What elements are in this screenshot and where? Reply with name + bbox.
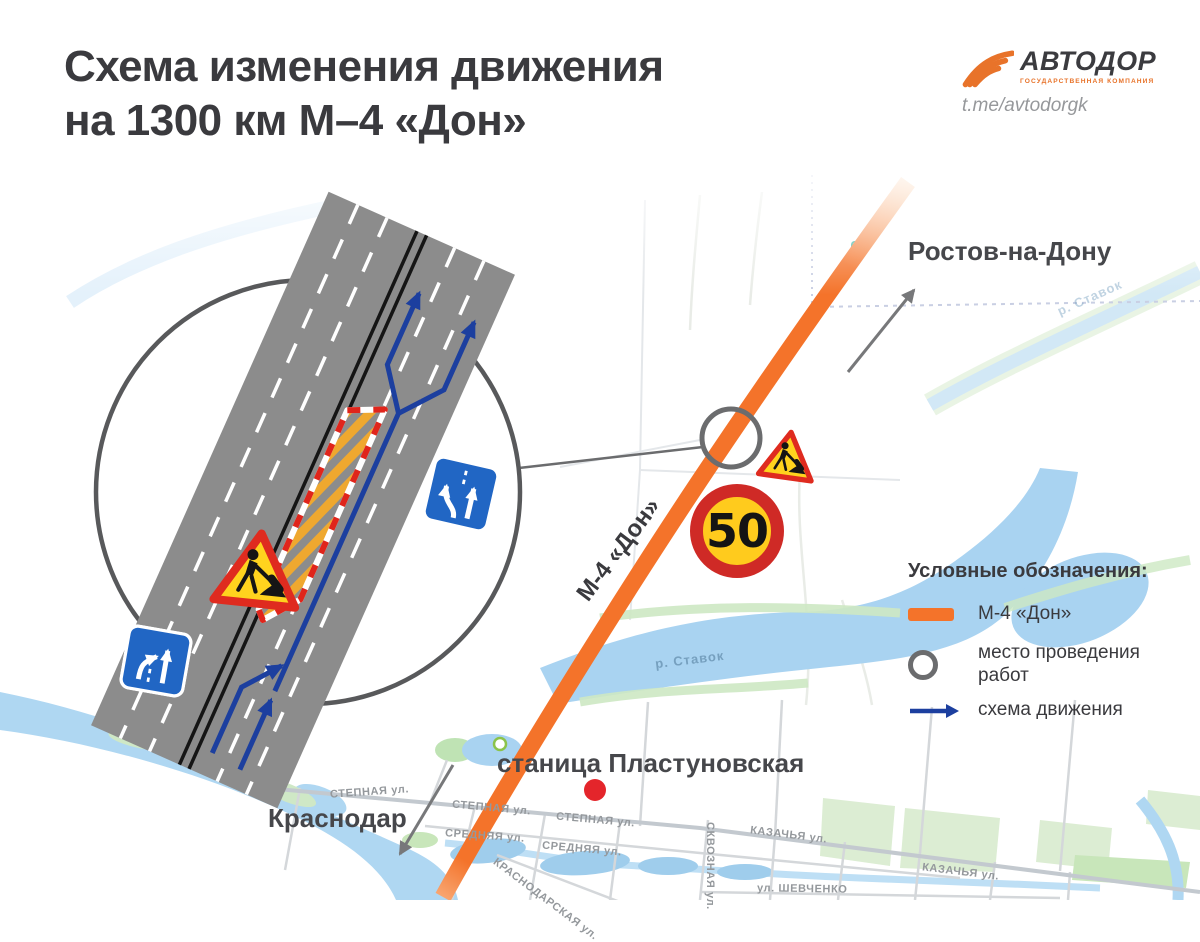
avtodor-logo: АВТОДОР ГОСУДАРСТВЕННАЯ КОМПАНИЯ t.me/av… — [962, 48, 1162, 117]
label-krasnodar: Краснодар — [268, 803, 407, 834]
legend-item-highway: М-4 «Дон» — [908, 603, 1176, 626]
legend-item-traffic-scheme: схема движения — [908, 699, 1176, 722]
rostov-direction-arrow — [848, 290, 914, 372]
page-title: Схема изменения движения на 1300 км М–4 … — [64, 40, 664, 147]
street-label: ул. ШЕВЧЕНКО — [757, 882, 848, 896]
label-stanitsa: станица Пластуновская — [497, 748, 804, 779]
legend-title: Условные обозначения: — [908, 560, 1176, 583]
direction-arrow-icon — [908, 703, 960, 719]
infographic-canvas: { "header": { "title_line1": "Схема изме… — [0, 0, 1200, 900]
speed-limit-value: 50 — [706, 504, 768, 558]
logo-brand: АВТОДОР — [1020, 48, 1156, 75]
label-rostov: Ростов-на-Дону — [908, 236, 1111, 267]
legend-item-label: М-4 «Дон» — [978, 603, 1071, 626]
page-title-line2: на 1300 км М–4 «Дон» — [64, 94, 664, 148]
lane-merge-sign — [120, 625, 193, 698]
legend-item-label: схема движения — [978, 699, 1123, 722]
inset-leader-line — [519, 447, 703, 468]
speed-limit-50-sign: 50 — [690, 484, 784, 578]
lane-shift-sign — [422, 455, 499, 532]
page-title-line1: Схема изменения движения — [64, 40, 664, 94]
logo-subtitle: ГОСУДАРСТВЕННАЯ КОМПАНИЯ — [1020, 78, 1156, 85]
legend-item-worksite: место проведения работ — [908, 642, 1176, 688]
road-swoosh-icon — [962, 48, 1014, 88]
logo-telegram: t.me/avtodorgk — [962, 95, 1162, 117]
highway-line-swatch-icon — [908, 608, 960, 621]
street-label: СКВОЗНАЯ ул. — [704, 822, 716, 910]
stanitsa-dot — [584, 779, 606, 801]
inset-road-scheme — [55, 185, 545, 810]
legend-item-label: место проведения работ — [978, 642, 1168, 688]
map-roadworks-sign — [755, 424, 822, 485]
legend: Условные обозначения: М-4 «Дон» место пр… — [908, 560, 1176, 738]
work-site-ring-icon — [908, 650, 960, 680]
